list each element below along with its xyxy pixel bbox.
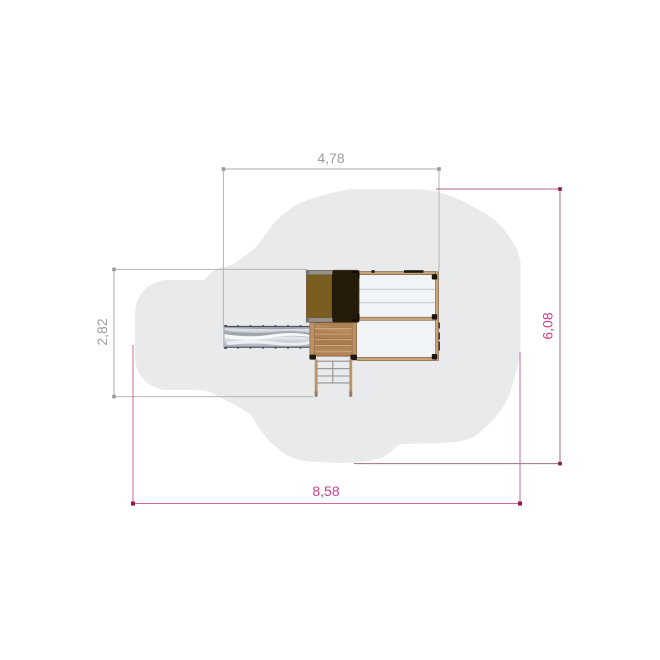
svg-text:2,82: 2,82 <box>94 318 110 345</box>
svg-text:8,58: 8,58 <box>312 483 339 499</box>
svg-text:6,08: 6,08 <box>539 312 555 339</box>
svg-text:4,78: 4,78 <box>317 150 344 166</box>
